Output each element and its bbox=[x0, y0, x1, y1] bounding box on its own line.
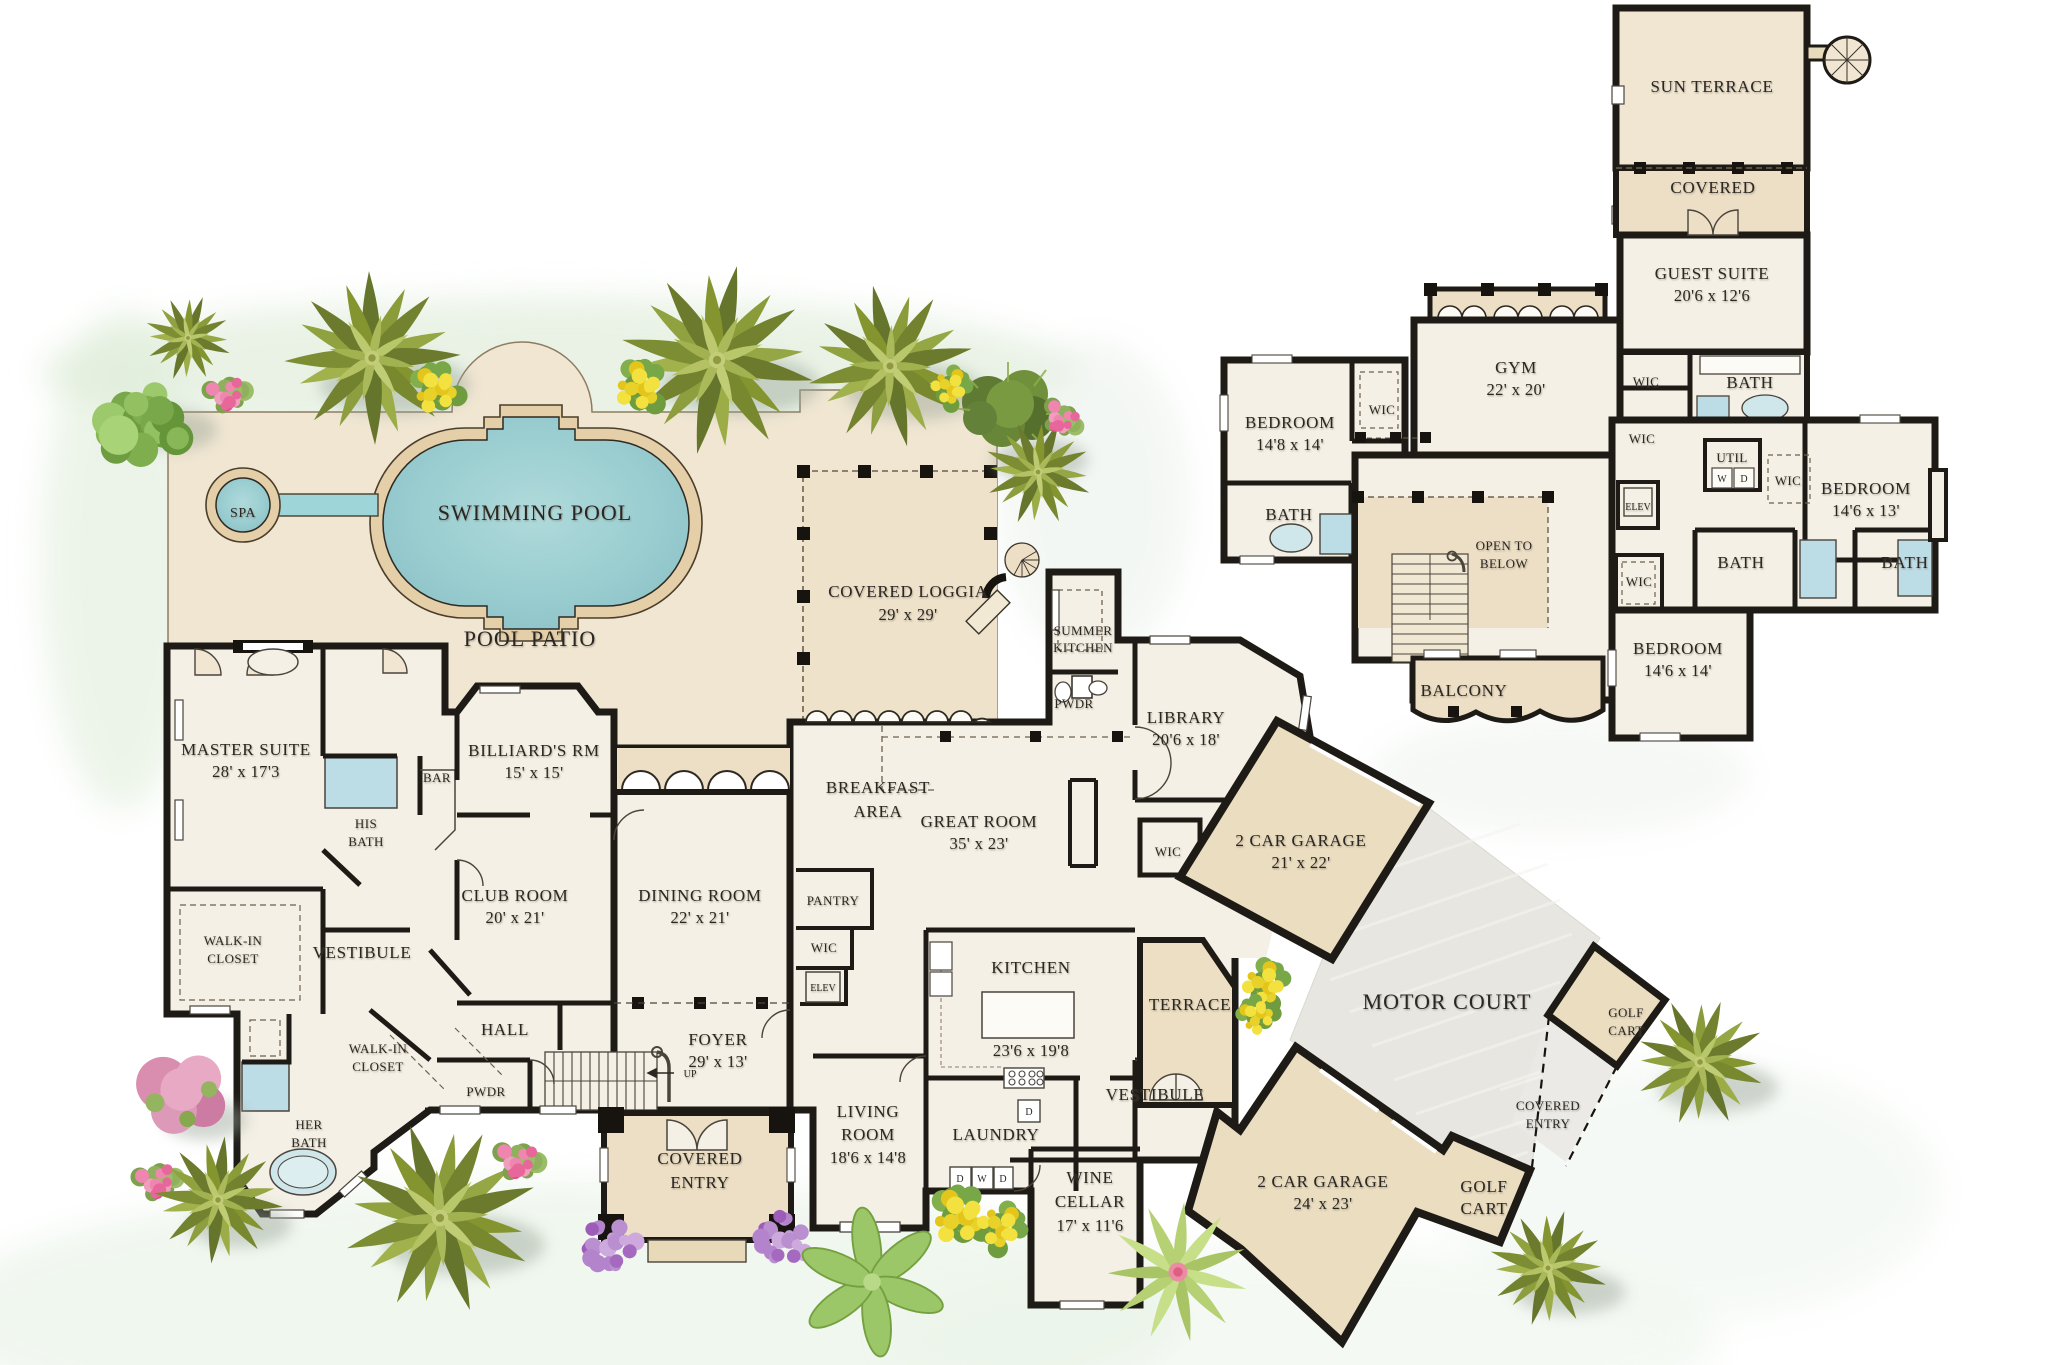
svg-text:HALL: HALL bbox=[481, 1020, 529, 1039]
svg-text:ELEV: ELEV bbox=[1625, 502, 1651, 513]
svg-text:BEDROOM: BEDROOM bbox=[1633, 639, 1723, 658]
svg-text:ELEV: ELEV bbox=[810, 983, 836, 994]
svg-text:WIC: WIC bbox=[1155, 844, 1181, 859]
svg-text:BATH: BATH bbox=[348, 834, 384, 849]
svg-text:PWDR: PWDR bbox=[466, 1084, 505, 1099]
svg-text:CELLAR: CELLAR bbox=[1055, 1192, 1125, 1211]
svg-text:CLOSET: CLOSET bbox=[352, 1059, 404, 1074]
svg-text:20' x 21': 20' x 21' bbox=[485, 908, 544, 927]
svg-text:2 CAR GARAGE: 2 CAR GARAGE bbox=[1235, 831, 1366, 850]
svg-text:SWIMMING POOL: SWIMMING POOL bbox=[438, 500, 633, 525]
svg-text:14'6 x 13': 14'6 x 13' bbox=[1832, 501, 1900, 520]
svg-text:WALK-IN: WALK-IN bbox=[204, 933, 263, 948]
svg-text:HIS: HIS bbox=[355, 816, 377, 831]
svg-text:LAUNDRY: LAUNDRY bbox=[952, 1125, 1039, 1144]
svg-text:WIC: WIC bbox=[1626, 574, 1652, 589]
svg-text:W: W bbox=[977, 1174, 987, 1185]
svg-text:SPA: SPA bbox=[230, 506, 256, 521]
svg-text:AREA: AREA bbox=[853, 802, 902, 821]
svg-text:24' x 23': 24' x 23' bbox=[1293, 1194, 1352, 1213]
svg-text:23'6 x 19'8: 23'6 x 19'8 bbox=[993, 1041, 1069, 1060]
svg-text:WIC: WIC bbox=[1775, 473, 1801, 488]
svg-text:BATH: BATH bbox=[1881, 553, 1928, 572]
svg-text:D: D bbox=[999, 1174, 1006, 1185]
svg-text:WIC: WIC bbox=[811, 940, 837, 955]
svg-text:WINE: WINE bbox=[1066, 1168, 1113, 1187]
svg-text:POOL PATIO: POOL PATIO bbox=[464, 626, 596, 651]
svg-text:21' x 22': 21' x 22' bbox=[1271, 853, 1330, 872]
svg-text:17' x 11'6: 17' x 11'6 bbox=[1056, 1216, 1123, 1235]
svg-text:LIBRARY: LIBRARY bbox=[1147, 708, 1226, 727]
svg-text:BATH: BATH bbox=[1726, 373, 1773, 392]
svg-text:CART: CART bbox=[1608, 1023, 1644, 1038]
svg-text:14'8 x 14': 14'8 x 14' bbox=[1256, 435, 1324, 454]
svg-text:MOTOR COURT: MOTOR COURT bbox=[1363, 989, 1532, 1014]
svg-text:BATH: BATH bbox=[1265, 505, 1312, 524]
svg-text:UP: UP bbox=[684, 1069, 697, 1080]
svg-text:KITCHEN: KITCHEN bbox=[991, 958, 1071, 977]
svg-text:COVERED LOGGIA: COVERED LOGGIA bbox=[828, 582, 988, 601]
svg-text:GREAT ROOM: GREAT ROOM bbox=[921, 812, 1038, 831]
svg-text:ROOM: ROOM bbox=[841, 1125, 895, 1144]
svg-text:CLOSET: CLOSET bbox=[207, 951, 259, 966]
svg-text:BATH: BATH bbox=[291, 1135, 327, 1150]
svg-text:20'6 x 12'6: 20'6 x 12'6 bbox=[1674, 286, 1750, 305]
svg-text:SUN TERRACE: SUN TERRACE bbox=[1650, 77, 1773, 96]
svg-text:W: W bbox=[1717, 474, 1727, 485]
svg-text:SUMMER: SUMMER bbox=[1054, 623, 1113, 638]
svg-text:22' x 20': 22' x 20' bbox=[1486, 380, 1545, 399]
svg-text:WALK-IN: WALK-IN bbox=[349, 1041, 408, 1056]
svg-text:D: D bbox=[956, 1174, 963, 1185]
svg-text:BREAKFAST: BREAKFAST bbox=[826, 778, 930, 797]
svg-text:BALCONY: BALCONY bbox=[1420, 681, 1507, 700]
svg-text:GOLF: GOLF bbox=[1460, 1177, 1507, 1196]
svg-text:29' x 29': 29' x 29' bbox=[878, 605, 937, 624]
svg-text:VESTIBULE: VESTIBULE bbox=[1106, 1085, 1205, 1104]
svg-text:FOYER: FOYER bbox=[688, 1030, 747, 1049]
svg-text:GOLF: GOLF bbox=[1608, 1005, 1644, 1020]
svg-text:VESTIBULE: VESTIBULE bbox=[313, 943, 412, 962]
svg-text:KITCHEN: KITCHEN bbox=[1053, 640, 1113, 655]
svg-text:BELOW: BELOW bbox=[1480, 556, 1529, 571]
svg-text:GYM: GYM bbox=[1495, 358, 1537, 377]
svg-text:BEDROOM: BEDROOM bbox=[1245, 413, 1335, 432]
svg-text:BEDROOM: BEDROOM bbox=[1821, 479, 1911, 498]
svg-text:ENTRY: ENTRY bbox=[1526, 1116, 1571, 1131]
svg-text:22' x 21': 22' x 21' bbox=[670, 908, 729, 927]
svg-text:D: D bbox=[1025, 1107, 1032, 1118]
svg-text:28' x 17'3: 28' x 17'3 bbox=[212, 762, 280, 781]
svg-text:OPEN TO: OPEN TO bbox=[1476, 538, 1533, 553]
svg-text:ENTRY: ENTRY bbox=[670, 1173, 729, 1192]
svg-text:CART: CART bbox=[1460, 1199, 1507, 1218]
svg-text:29' x 13': 29' x 13' bbox=[688, 1052, 747, 1071]
svg-text:CLUB ROOM: CLUB ROOM bbox=[462, 886, 569, 905]
svg-text:HER: HER bbox=[295, 1117, 322, 1132]
svg-text:18'6 x 14'8: 18'6 x 14'8 bbox=[830, 1148, 906, 1167]
svg-text:GUEST SUITE: GUEST SUITE bbox=[1655, 264, 1770, 283]
svg-text:WIC: WIC bbox=[1633, 374, 1659, 389]
svg-text:TERRACE: TERRACE bbox=[1149, 995, 1231, 1014]
svg-text:COVERED: COVERED bbox=[657, 1149, 742, 1168]
svg-text:D: D bbox=[1740, 474, 1747, 485]
svg-text:BAR: BAR bbox=[423, 770, 451, 785]
svg-text:LIVING: LIVING bbox=[837, 1102, 900, 1121]
svg-text:20'6 x 18': 20'6 x 18' bbox=[1152, 730, 1220, 749]
svg-text:BILLIARD'S RM: BILLIARD'S RM bbox=[468, 741, 600, 760]
svg-text:WIC: WIC bbox=[1629, 431, 1655, 446]
svg-text:PWDR: PWDR bbox=[1054, 696, 1093, 711]
svg-text:14'6 x 14': 14'6 x 14' bbox=[1644, 661, 1712, 680]
svg-text:WIC: WIC bbox=[1369, 402, 1395, 417]
svg-text:15' x 15': 15' x 15' bbox=[504, 763, 563, 782]
svg-text:MASTER SUITE: MASTER SUITE bbox=[181, 740, 311, 759]
svg-text:COVERED: COVERED bbox=[1670, 178, 1755, 197]
svg-text:2 CAR GARAGE: 2 CAR GARAGE bbox=[1257, 1172, 1388, 1191]
svg-text:COVERED: COVERED bbox=[1516, 1098, 1580, 1113]
svg-text:BATH: BATH bbox=[1717, 553, 1764, 572]
svg-text:35' x 23': 35' x 23' bbox=[949, 834, 1008, 853]
svg-text:UTIL: UTIL bbox=[1716, 450, 1747, 465]
svg-text:DINING ROOM: DINING ROOM bbox=[638, 886, 761, 905]
svg-text:PANTRY: PANTRY bbox=[807, 893, 860, 908]
